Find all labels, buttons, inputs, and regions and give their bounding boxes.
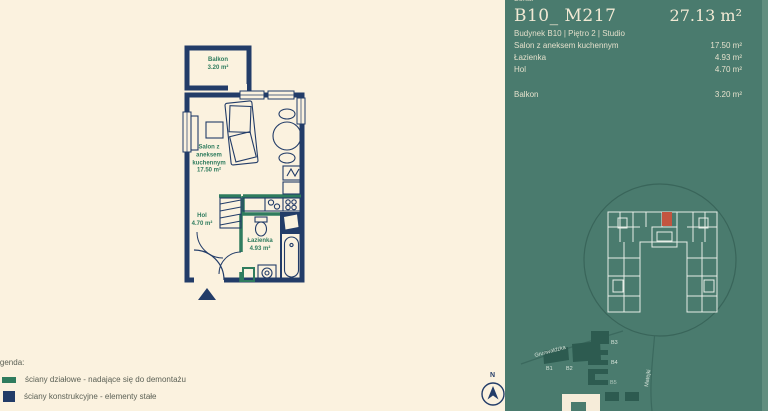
burner-3	[286, 205, 290, 209]
sink-bowl-1	[268, 200, 273, 205]
legend: Legenda: ściany działowe - nadające się …	[0, 358, 186, 409]
burner-2	[292, 200, 296, 204]
chair-top	[279, 109, 295, 119]
legend-item-partition: ściany działowe - nadające się do demont…	[0, 375, 186, 384]
floorplan-area: Balkon 3.20 m² Salon z aneksem kuchennym…	[0, 0, 505, 411]
building-small-1	[605, 392, 619, 401]
partition-wall-swatch	[2, 377, 16, 383]
building-b5-shape[interactable]	[588, 369, 608, 385]
unit-info-panel: Lokal B10_ M217 27.13 m² Budynek B10 | P…	[505, 0, 768, 411]
room-label-salon: Salon z aneksem kuchennym 17.50 m²	[192, 144, 225, 175]
floorplan-drawing	[0, 0, 505, 411]
chair-bottom	[279, 153, 295, 163]
kitchen-cabinet	[283, 182, 302, 194]
building-label-b2: B2	[566, 366, 573, 372]
shower-block	[280, 212, 302, 232]
sink-bowl-2	[274, 204, 279, 209]
legend-item-label: ściany konstrukcyjne - elementy stałe	[24, 392, 157, 401]
room-label-hol: Hol 4.70 m²	[192, 213, 213, 229]
structural-wall-swatch	[3, 391, 15, 402]
burner-4	[292, 205, 296, 209]
building-b3-shape[interactable]	[591, 331, 609, 344]
building-label-b4: B4	[611, 360, 618, 366]
compass-north-label: N	[490, 372, 495, 379]
entrance-marker-triangle	[198, 288, 216, 300]
building-label-b3: B3	[611, 340, 618, 346]
bathtub	[281, 233, 302, 281]
coffee-table	[206, 122, 223, 138]
sitemap: B1 B2 B3 B4 B5 Grunwaldzka Matejki	[505, 0, 768, 411]
entrance-gap	[194, 274, 224, 286]
hall-door-arc	[197, 232, 223, 258]
building-label-b5: B5	[610, 380, 617, 386]
legend-title: Legenda:	[0, 358, 186, 367]
building-label-b1: B1	[546, 366, 553, 372]
legend-item-label: ściany działowe - nadające się do demont…	[25, 375, 186, 384]
apartment-card-page: Balkon 3.20 m² Salon z aneksem kuchennym…	[0, 0, 768, 411]
room-label-balkon: Balkon 3.20 m²	[208, 57, 229, 73]
building-b10-site-shape[interactable]	[562, 394, 600, 411]
panel-scrollbar[interactable]	[762, 0, 768, 411]
legend-item-structural: ściany konstrukcyjne - elementy stałe	[0, 391, 186, 402]
toilet	[255, 217, 267, 236]
compass-icon	[482, 383, 504, 405]
sofa	[225, 101, 258, 165]
unit-highlight[interactable]	[662, 212, 672, 226]
focus-circle	[584, 184, 736, 336]
site-buildings	[543, 331, 639, 401]
room-label-lazienka: Łazienka 4.93 m²	[247, 238, 272, 254]
fridge-glyph	[287, 169, 299, 176]
burner-1	[286, 200, 290, 204]
building-small-2	[625, 392, 639, 401]
wardrobe	[220, 198, 241, 228]
fridge	[283, 166, 302, 180]
dining-table	[273, 122, 301, 150]
